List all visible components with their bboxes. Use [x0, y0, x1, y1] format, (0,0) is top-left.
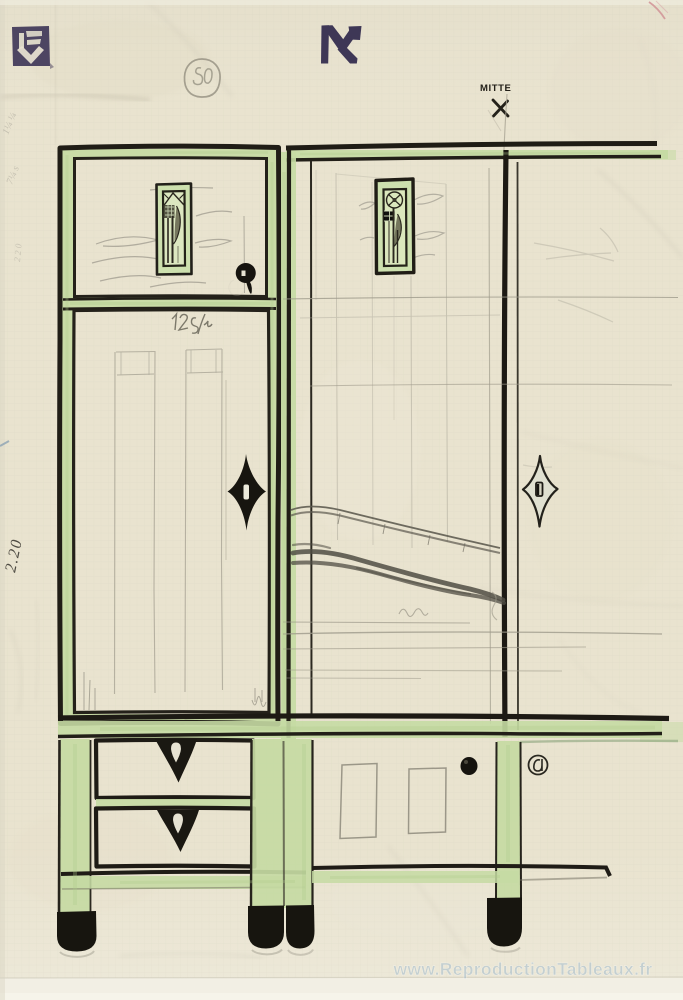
- svg-text:MITTE: MITTE: [480, 83, 512, 94]
- svg-text:www.ReproductionTableaux.fr: www.ReproductionTableaux.fr: [393, 959, 653, 979]
- svg-text:2 2 0: 2 2 0: [12, 243, 24, 262]
